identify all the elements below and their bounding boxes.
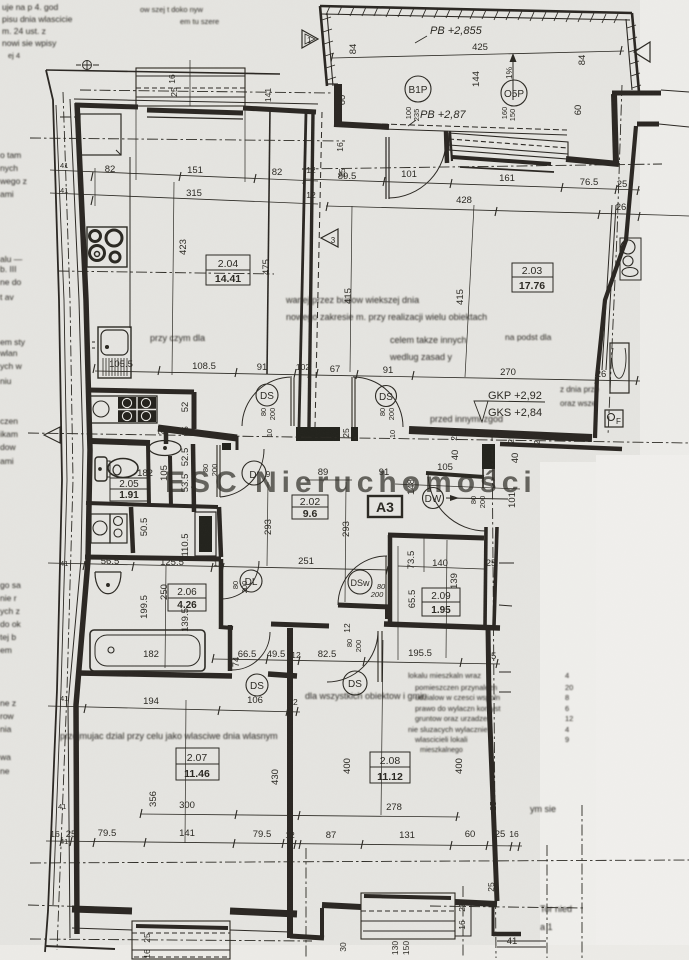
svg-text:ne do: ne do: [0, 277, 22, 287]
svg-text:65.5: 65.5: [407, 590, 418, 609]
svg-text:52.5: 52.5: [180, 448, 191, 467]
svg-text:ne: ne: [0, 766, 10, 776]
svg-text:czen: czen: [0, 416, 18, 426]
svg-text:161: 161: [499, 173, 515, 184]
svg-text:50.5: 50.5: [139, 518, 150, 537]
svg-text:141: 141: [263, 88, 273, 102]
svg-text:16: 16: [167, 74, 177, 84]
svg-text:182: 182: [143, 649, 159, 660]
svg-text:z dnia prze: z dnia prze: [560, 385, 600, 394]
svg-text:79.5: 79.5: [253, 829, 272, 840]
svg-text:25: 25: [532, 435, 542, 445]
svg-text:80: 80: [231, 581, 240, 589]
svg-text:12: 12: [306, 190, 316, 200]
svg-text:41: 41: [60, 161, 68, 170]
svg-text:182: 182: [137, 468, 153, 479]
svg-text:430: 430: [270, 769, 281, 785]
svg-text:9: 9: [565, 735, 569, 744]
svg-text:400: 400: [454, 758, 465, 774]
svg-text:2.08: 2.08: [380, 755, 401, 767]
svg-text:PB +2,87: PB +2,87: [420, 109, 466, 121]
svg-text:celem takze innych: celem takze innych: [390, 335, 467, 345]
svg-text:ESC Nieruchomości: ESC Nieruchomości: [165, 466, 537, 499]
svg-text:400: 400: [342, 758, 353, 774]
svg-text:60: 60: [465, 829, 476, 840]
svg-text:25: 25: [337, 168, 347, 178]
svg-text:2.04: 2.04: [218, 258, 239, 270]
svg-text:PB +2,855: PB +2,855: [430, 25, 483, 37]
svg-text:DSw: DSw: [350, 578, 370, 588]
svg-text:przy czym dla: przy czym dla: [150, 333, 205, 343]
svg-text:141: 141: [179, 828, 195, 839]
svg-text:60: 60: [573, 105, 584, 116]
svg-text:194: 194: [143, 696, 159, 707]
svg-text:49.5: 49.5: [267, 649, 286, 660]
svg-text:o tam: o tam: [0, 150, 21, 160]
svg-text:a 1: a 1: [540, 922, 553, 932]
svg-text:91: 91: [383, 365, 394, 376]
svg-text:nie r: nie r: [0, 593, 17, 603]
svg-text:139.5: 139.5: [180, 608, 191, 632]
svg-text:60: 60: [337, 95, 348, 106]
svg-text:12: 12: [291, 650, 301, 660]
svg-text:b. III: b. III: [0, 264, 17, 274]
svg-text:9.6: 9.6: [303, 508, 318, 520]
svg-text:16: 16: [457, 920, 467, 930]
svg-text:A3: A3: [376, 499, 394, 515]
svg-text:na podst dla: na podst dla: [505, 332, 552, 342]
svg-text:12: 12: [565, 714, 573, 723]
svg-text:278: 278: [386, 802, 402, 813]
svg-text:4.26: 4.26: [177, 600, 197, 611]
svg-text:DS: DS: [348, 679, 362, 690]
svg-text:105.5: 105.5: [109, 359, 133, 370]
svg-text:200: 200: [387, 408, 396, 421]
svg-text:nie sluzacych wylacznie: nie sluzacych wylacznie: [408, 725, 488, 734]
svg-text:3: 3: [331, 236, 336, 245]
svg-text:200: 200: [370, 590, 384, 599]
svg-text:26: 26: [449, 431, 459, 441]
svg-text:1.95: 1.95: [431, 605, 451, 616]
svg-text:125.5: 125.5: [160, 557, 184, 568]
svg-text:251: 251: [298, 556, 314, 567]
svg-text:2.03: 2.03: [522, 265, 543, 277]
svg-text:mieszkalnego: mieszkalnego: [420, 747, 463, 754]
svg-text:315: 315: [186, 188, 202, 199]
svg-text:pisu dnia wlascicie: pisu dnia wlascicie: [2, 14, 73, 24]
svg-text:195.5: 195.5: [408, 648, 432, 659]
svg-text:25: 25: [617, 179, 628, 190]
svg-text:m. 24 ust. z: m. 24 ust. z: [2, 26, 46, 36]
svg-text:6: 6: [565, 704, 569, 713]
svg-text:em sty: em sty: [0, 337, 26, 347]
svg-text:11.12: 11.12: [377, 771, 403, 783]
svg-text:10: 10: [388, 430, 397, 438]
svg-text:26: 26: [596, 369, 607, 380]
svg-text:12: 12: [288, 697, 298, 707]
svg-text:row: row: [0, 711, 15, 721]
svg-text:139: 139: [449, 573, 460, 589]
svg-text:ikam: ikam: [0, 429, 18, 439]
svg-text:GKP +2,92: GKP +2,92: [488, 390, 542, 402]
svg-text:t av: t av: [0, 292, 14, 302]
svg-text:2.05: 2.05: [119, 479, 139, 490]
svg-text:12: 12: [213, 558, 223, 568]
svg-text:82.5: 82.5: [318, 649, 337, 660]
svg-text:16: 16: [509, 829, 519, 839]
svg-text:oraz wsze: oraz wsze: [560, 399, 597, 408]
svg-text:DS: DS: [250, 681, 264, 692]
svg-text:przejmujac dzial przy celu jak: przejmujac dzial przy celu jako wlasciwe…: [60, 731, 278, 741]
svg-text:wlan: wlan: [0, 348, 18, 358]
svg-text:101: 101: [401, 169, 417, 180]
svg-text:nia: nia: [0, 724, 12, 734]
svg-text:ami: ami: [0, 189, 14, 199]
svg-text:lokalu mieszkaln wraz: lokalu mieszkaln wraz: [408, 671, 481, 680]
svg-text:12: 12: [342, 623, 352, 633]
svg-text:91: 91: [257, 362, 268, 373]
svg-text:alu —: alu —: [0, 254, 23, 264]
svg-text:80: 80: [259, 408, 268, 416]
svg-text:nowego zakresie m. przy realiz: nowego zakresie m. przy realizacji wielu…: [286, 312, 487, 322]
svg-text:pomieszczen przynalezn: pomieszczen przynalezn: [415, 683, 497, 692]
svg-text:16: 16: [142, 949, 152, 959]
svg-text:wego z: wego z: [0, 176, 27, 186]
svg-text:DL: DL: [245, 577, 258, 588]
svg-text:niu: niu: [0, 376, 12, 386]
svg-text:25: 25: [457, 902, 467, 912]
svg-text:25: 25: [495, 829, 506, 840]
svg-text:25: 25: [488, 801, 498, 811]
svg-text:150: 150: [401, 941, 411, 955]
svg-text:428: 428: [456, 195, 472, 206]
svg-text:ym sie: ym sie: [530, 804, 556, 814]
svg-text:16: 16: [50, 829, 60, 839]
svg-text:4: 4: [565, 671, 569, 680]
svg-text:80: 80: [378, 408, 387, 416]
svg-text:106: 106: [247, 695, 263, 706]
svg-text:41: 41: [507, 936, 518, 947]
svg-text:O5P: O5P: [504, 89, 524, 100]
svg-text:52: 52: [180, 402, 191, 413]
svg-text:415: 415: [343, 288, 354, 304]
svg-text:wedlug zasad y: wedlug zasad y: [389, 352, 453, 362]
svg-text:25: 25: [180, 426, 190, 436]
svg-text:73.5: 73.5: [406, 551, 417, 570]
svg-text:Tor nied: Tor nied: [540, 904, 572, 914]
svg-text:ych z: ych z: [0, 606, 20, 616]
svg-text:140: 140: [432, 558, 448, 569]
svg-text:dla wszystkich obiektow i gmin: dla wszystkich obiektow i gmin: [305, 691, 427, 701]
svg-text:2.09: 2.09: [431, 591, 451, 602]
svg-text:wlascicieli lokali: wlascicieli lokali: [414, 735, 468, 744]
svg-text:nowi sie wpisy: nowi sie wpisy: [2, 38, 57, 48]
svg-text:356: 356: [148, 791, 159, 807]
svg-text:425: 425: [472, 42, 488, 53]
svg-text:2.07: 2.07: [187, 752, 208, 764]
svg-text:ej 4: ej 4: [8, 51, 20, 60]
svg-text:12: 12: [285, 830, 295, 840]
svg-text:10: 10: [265, 429, 274, 437]
svg-text:79.5: 79.5: [98, 828, 117, 839]
svg-text:423: 423: [178, 239, 189, 255]
svg-text:uje na p 4. god: uje na p 4. god: [2, 2, 59, 12]
svg-text:26: 26: [616, 202, 627, 213]
svg-text:25: 25: [169, 87, 179, 97]
svg-text:82: 82: [272, 167, 283, 178]
svg-text:130: 130: [390, 941, 400, 955]
svg-text:131: 131: [399, 830, 415, 841]
svg-text:em: em: [0, 645, 12, 655]
svg-text:ne z: ne z: [0, 698, 16, 708]
svg-text:ami: ami: [0, 456, 14, 466]
svg-text:gruntow oraz urzadzen: gruntow oraz urzadzen: [415, 714, 491, 723]
svg-text:GKS +2,84: GKS +2,84: [488, 407, 542, 419]
svg-text:2.06: 2.06: [177, 587, 197, 598]
svg-text:1: 1: [307, 36, 312, 45]
svg-text:84: 84: [348, 44, 359, 55]
svg-text:do ok: do ok: [0, 619, 22, 629]
svg-text:82: 82: [105, 164, 116, 175]
svg-text:wa: wa: [0, 752, 11, 762]
svg-text:1.91: 1.91: [119, 490, 139, 501]
svg-text:nych: nych: [0, 163, 18, 173]
svg-text:25: 25: [341, 428, 351, 438]
svg-text:74: 74: [231, 657, 242, 668]
svg-text:56.5: 56.5: [101, 556, 120, 567]
svg-text:dow: dow: [0, 442, 16, 452]
svg-text:40: 40: [450, 450, 461, 461]
svg-text:76.5: 76.5: [580, 177, 599, 188]
svg-text:B1P: B1P: [409, 85, 428, 96]
svg-text:25: 25: [156, 425, 166, 435]
svg-text:199.5: 199.5: [139, 595, 150, 619]
svg-text:108.5: 108.5: [192, 361, 216, 372]
svg-text:14.41: 14.41: [215, 273, 241, 285]
svg-text:200: 200: [354, 640, 363, 653]
svg-text:ych w: ych w: [0, 361, 23, 371]
svg-text:270: 270: [500, 367, 516, 378]
svg-text:30: 30: [338, 942, 348, 952]
svg-text:415: 415: [455, 289, 466, 305]
svg-text:F: F: [616, 417, 621, 426]
svg-text:25: 25: [142, 933, 152, 943]
svg-text:25: 25: [486, 558, 497, 569]
svg-text:67: 67: [330, 364, 341, 375]
svg-text:293: 293: [341, 521, 352, 537]
svg-text:110.5: 110.5: [180, 533, 191, 556]
svg-text:25: 25: [506, 434, 516, 444]
svg-text:151: 151: [187, 165, 203, 176]
svg-text:12: 12: [306, 165, 316, 175]
svg-text:11.46: 11.46: [184, 768, 210, 780]
svg-text:25: 25: [486, 882, 496, 892]
svg-text:87: 87: [326, 830, 337, 841]
svg-text:DS: DS: [260, 391, 274, 402]
svg-text:25: 25: [66, 829, 77, 840]
svg-text:4: 4: [565, 725, 569, 734]
svg-text:16: 16: [335, 142, 345, 152]
svg-text:20: 20: [565, 683, 573, 692]
svg-text:300: 300: [179, 800, 195, 811]
svg-text:tej b: tej b: [0, 632, 16, 642]
svg-text:8: 8: [565, 693, 569, 702]
svg-text:25: 25: [486, 651, 497, 662]
svg-text:144: 144: [471, 71, 482, 87]
svg-text:DS: DS: [379, 392, 393, 403]
svg-text:em tu szere: em tu szere: [180, 17, 219, 26]
svg-text:293: 293: [263, 519, 274, 535]
svg-text:200: 200: [268, 408, 277, 421]
svg-text:ow szej t doko nyw: ow szej t doko nyw: [140, 5, 204, 14]
svg-text:40: 40: [510, 453, 521, 464]
svg-text:150: 150: [508, 109, 517, 122]
svg-text:84: 84: [577, 55, 588, 66]
svg-text:102: 102: [296, 362, 310, 372]
svg-text:17.76: 17.76: [519, 280, 545, 292]
svg-text:go sa: go sa: [0, 580, 21, 590]
svg-text:475: 475: [261, 259, 272, 275]
svg-text:1%: 1%: [504, 66, 514, 79]
svg-text:80: 80: [345, 639, 354, 647]
